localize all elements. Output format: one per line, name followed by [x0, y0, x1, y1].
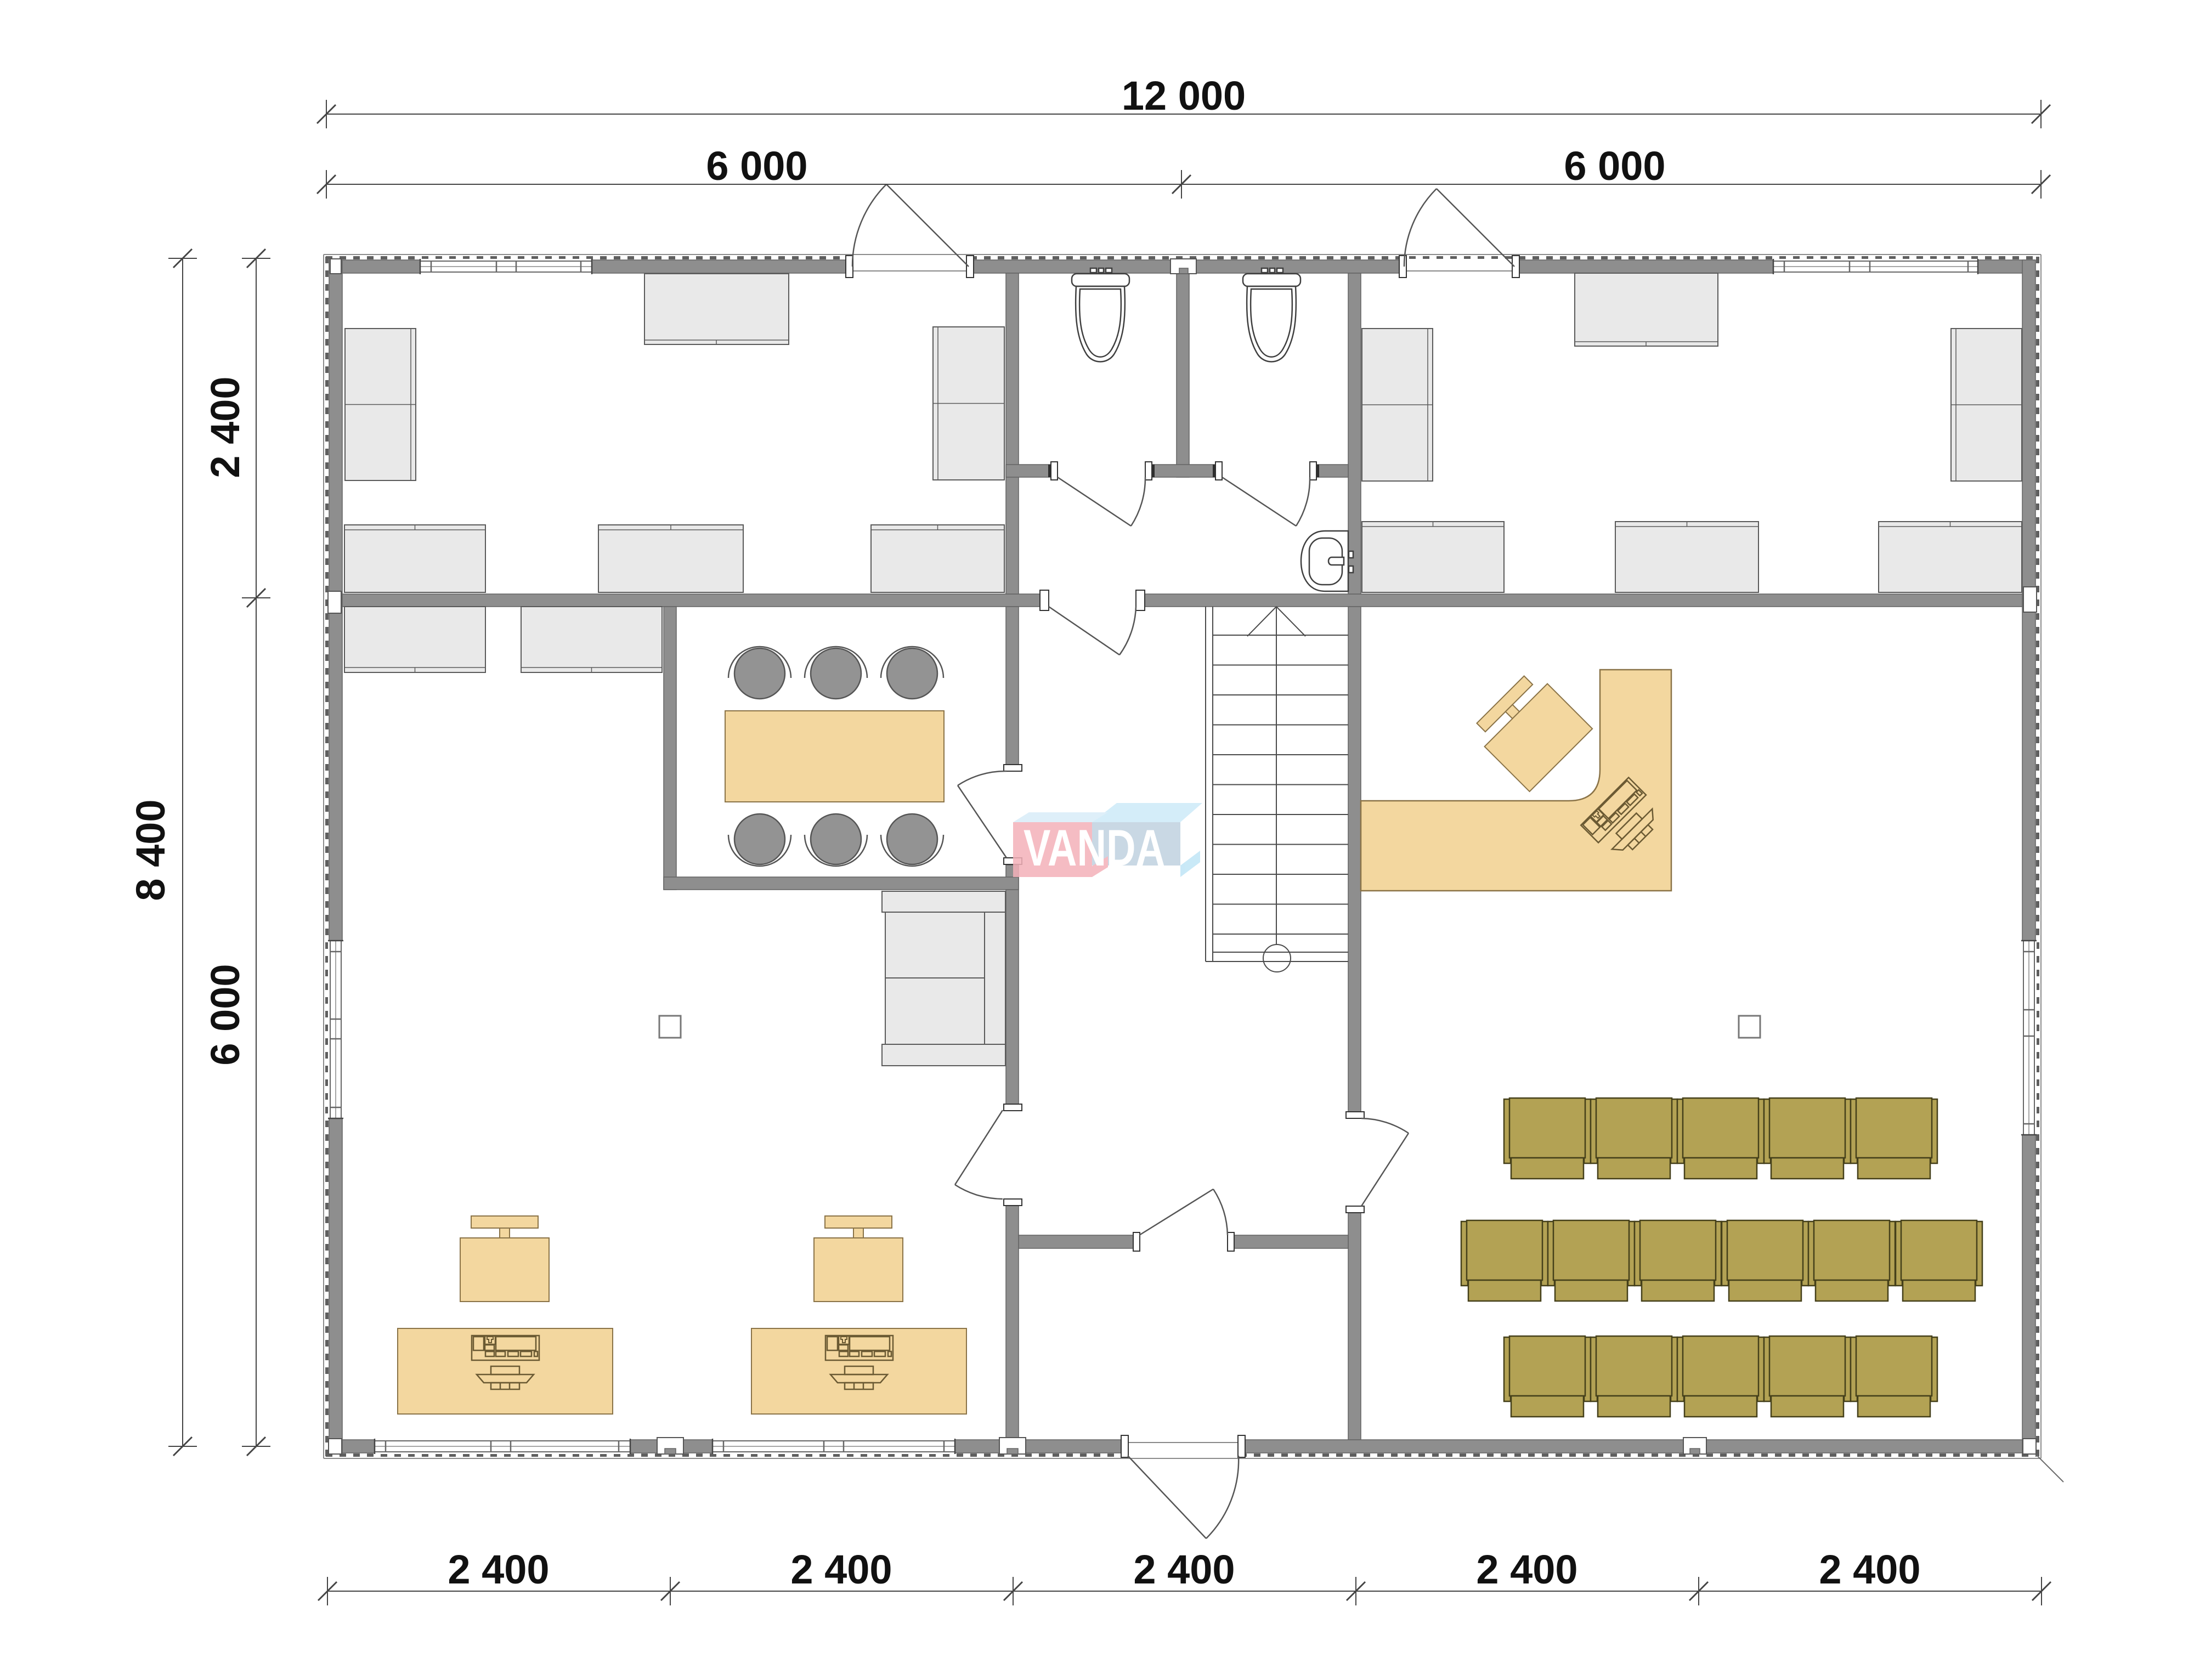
svg-text:6 000: 6 000 [706, 143, 807, 189]
svg-text:2 400: 2 400 [1819, 1547, 1920, 1592]
svg-text:6 000: 6 000 [1564, 143, 1665, 189]
svg-text:2 400: 2 400 [1133, 1547, 1235, 1592]
svg-text:12 000: 12 000 [1122, 73, 1246, 118]
svg-text:2 400: 2 400 [1476, 1547, 1577, 1592]
svg-text:2 400: 2 400 [202, 376, 248, 478]
svg-text:VANDA: VANDA [1024, 819, 1165, 876]
svg-text:8 400: 8 400 [128, 799, 173, 901]
svg-text:2 400: 2 400 [790, 1547, 892, 1592]
svg-text:2 400: 2 400 [448, 1547, 549, 1592]
svg-text:6 000: 6 000 [202, 964, 248, 1065]
